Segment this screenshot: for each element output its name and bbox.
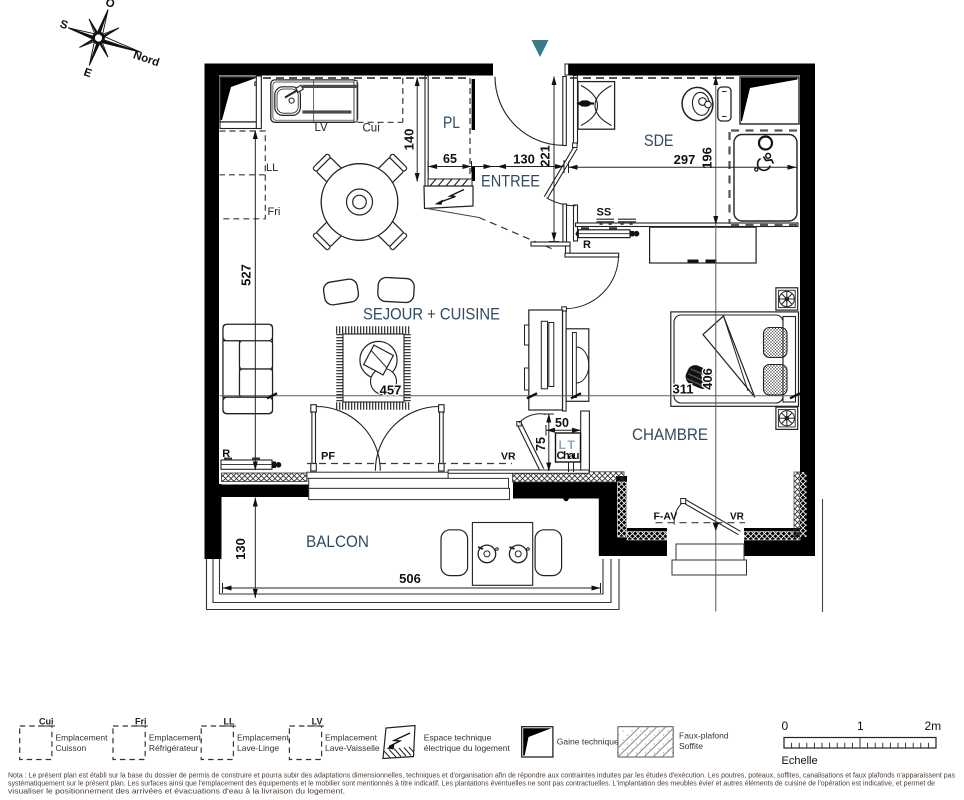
svg-text:Chau: Chau [557, 450, 580, 462]
svg-text:BALCON: BALCON [306, 532, 369, 551]
svg-text:Cuisson: Cuisson [56, 743, 87, 753]
svg-text:Faux-plafond: Faux-plafond [679, 731, 729, 741]
svg-text:PL: PL [443, 113, 460, 132]
svg-text:LL: LL [266, 162, 278, 174]
svg-text:1: 1 [857, 719, 864, 733]
svg-text:systématiquement sur le présen: systématiquement sur le présent plan. Le… [8, 781, 935, 788]
svg-text:PF: PF [321, 451, 335, 463]
svg-text:130: 130 [233, 538, 248, 560]
svg-text:Réfrigérateur: Réfrigérateur [149, 743, 199, 753]
svg-text:Fri: Fri [135, 717, 147, 727]
svg-text:130: 130 [513, 152, 535, 167]
svg-text:457: 457 [380, 383, 402, 398]
svg-text:Emplacement: Emplacement [325, 733, 378, 743]
svg-text:Espace technique: Espace technique [424, 733, 492, 743]
svg-text:LV: LV [315, 122, 329, 134]
svg-text:Emplacement: Emplacement [237, 733, 290, 743]
svg-text:électrique du logement: électrique du logement [424, 743, 511, 753]
svg-text:311: 311 [673, 382, 694, 397]
svg-text:Gaine technique: Gaine technique [557, 737, 619, 747]
svg-text:ENTREE: ENTREE [481, 172, 540, 191]
svg-text:SDE: SDE [644, 131, 674, 150]
svg-text:Nota : Le présent plan est éta: Nota : Le présent plan est établi sur la… [8, 773, 955, 780]
svg-text:Emplacement: Emplacement [56, 733, 109, 743]
svg-text:Emplacement: Emplacement [149, 733, 202, 743]
svg-text:75: 75 [534, 437, 548, 451]
svg-text:SS: SS [597, 207, 612, 219]
svg-text:Fri: Fri [268, 206, 281, 218]
svg-text:221: 221 [538, 145, 553, 167]
svg-text:LL: LL [224, 717, 235, 727]
svg-text:VR: VR [730, 512, 745, 523]
svg-text:F-AV: F-AV [654, 511, 678, 523]
svg-text:LV: LV [312, 717, 323, 727]
svg-text:506: 506 [399, 571, 421, 586]
svg-text:297: 297 [674, 152, 696, 167]
svg-text:Soffite: Soffite [679, 741, 703, 751]
svg-text:140: 140 [402, 129, 417, 151]
svg-text:Cui: Cui [363, 123, 380, 135]
svg-text:196: 196 [700, 147, 715, 169]
svg-text:Echelle: Echelle [782, 755, 818, 767]
svg-text:SEJOUR + CUISINE: SEJOUR + CUISINE [363, 305, 500, 324]
svg-text:visualiser le positionnement d: visualiser le positionnement des arrivée… [8, 789, 345, 796]
svg-text:VR: VR [501, 451, 516, 463]
svg-text:0: 0 [782, 719, 789, 733]
svg-text:R: R [222, 448, 230, 460]
svg-text:Lave-Vaisselle: Lave-Vaisselle [325, 743, 380, 753]
svg-text:Cui: Cui [39, 717, 54, 727]
svg-text:CHAMBRE: CHAMBRE [632, 425, 708, 444]
svg-text:65: 65 [443, 152, 457, 166]
svg-text:R: R [583, 239, 591, 251]
svg-text:Lave-Linge: Lave-Linge [237, 743, 279, 753]
svg-text:527: 527 [239, 264, 254, 286]
svg-text:50: 50 [555, 416, 569, 430]
svg-text:406: 406 [700, 368, 715, 390]
svg-text:2m: 2m [925, 719, 942, 733]
